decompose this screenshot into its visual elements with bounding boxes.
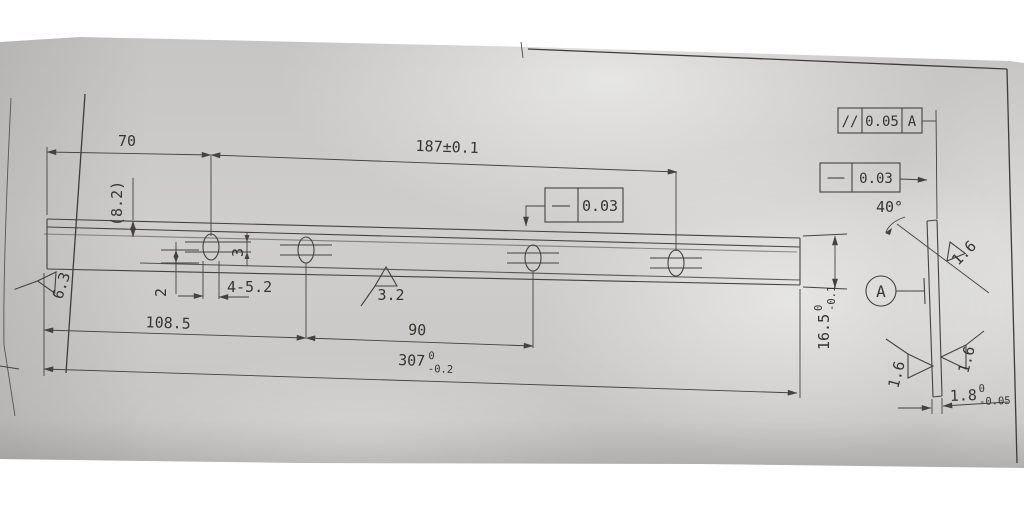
dimension-text: 90: [408, 321, 427, 340]
dimension-text: 3: [229, 248, 247, 257]
parallelism-symbol-icon: //: [842, 114, 859, 130]
straightness-symbol-icon: —: [828, 170, 846, 186]
fcf-tolerance: 0.05: [865, 114, 899, 130]
dimension-text: 4-5.2: [227, 278, 272, 296]
paper-sheet: [0, 0, 1024, 512]
dimension-text: 16.5: [815, 314, 833, 350]
dimension-text: (8.2): [108, 181, 126, 226]
tolerance-lower: -0.1: [826, 286, 838, 311]
dimension-text: 108.5: [145, 313, 191, 333]
angle-text: 40°: [876, 198, 903, 216]
dimension-text: 70: [118, 132, 136, 150]
tolerance-upper: 0: [428, 350, 435, 362]
tolerance-lower: -0.2: [428, 363, 454, 376]
dimension-text: 1.8: [950, 386, 978, 405]
fcf-tolerance: 0.03: [859, 171, 893, 187]
fcf-datum-ref: A: [908, 114, 917, 130]
dimension-text: 2: [152, 288, 170, 297]
tolerance-upper: 0: [813, 305, 825, 311]
tolerance-upper: 0: [978, 383, 985, 395]
dimension-text: 187±0.1: [415, 137, 479, 157]
photo-of-engineering-drawing: 70 187±0.1 (8.2) 2 3: [0, 0, 1024, 512]
straightness-symbol-icon: —: [552, 198, 571, 214]
roughness-value: 3.2: [377, 286, 404, 304]
tolerance-lower: -0.05: [979, 395, 1011, 408]
dimension-text: 307: [398, 351, 426, 370]
datum-label: A: [876, 282, 886, 301]
drawing-canvas: 70 187±0.1 (8.2) 2 3: [0, 0, 1024, 512]
fcf-tolerance: 0.03: [582, 197, 618, 215]
